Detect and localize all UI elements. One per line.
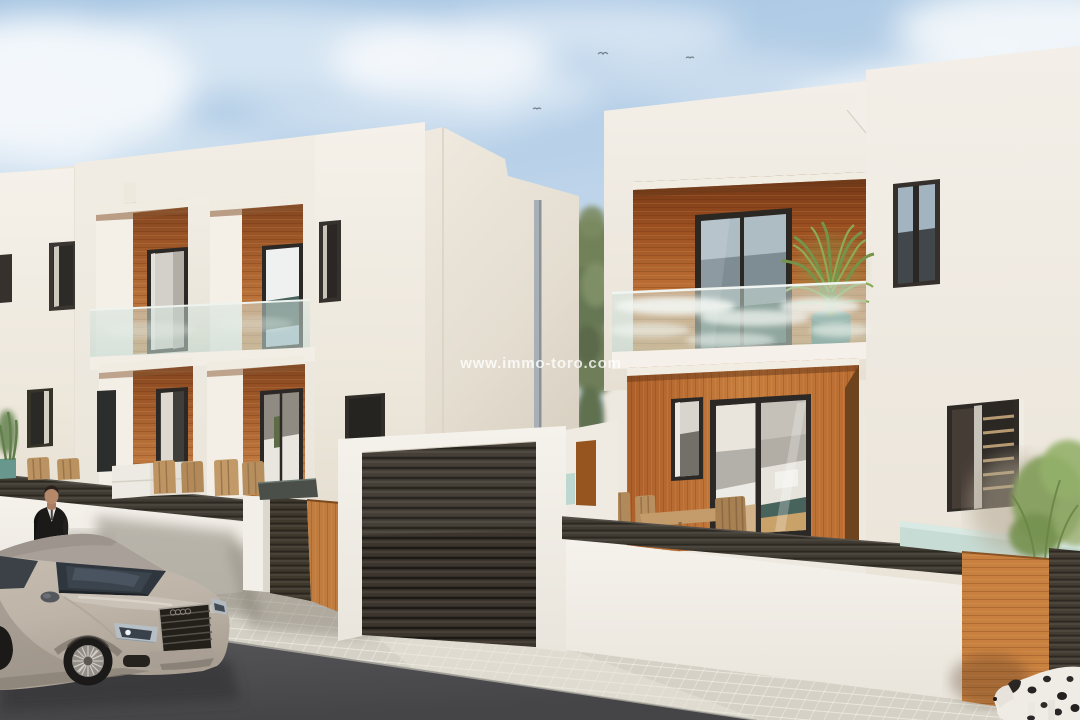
svg-text:www.immo-toro.com: www.immo-toro.com — [459, 355, 621, 372]
